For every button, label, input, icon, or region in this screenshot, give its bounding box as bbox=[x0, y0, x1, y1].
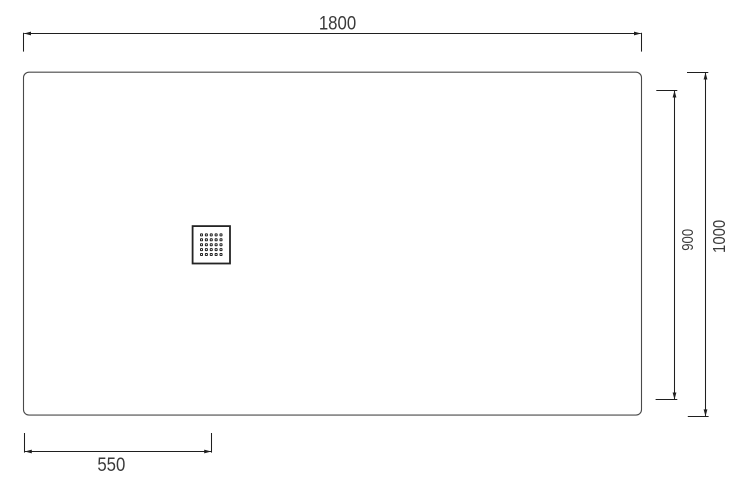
svg-text:550: 550 bbox=[97, 454, 125, 475]
svg-text:1000: 1000 bbox=[710, 220, 729, 253]
svg-text:900: 900 bbox=[680, 229, 697, 251]
svg-text:1800: 1800 bbox=[319, 12, 356, 33]
